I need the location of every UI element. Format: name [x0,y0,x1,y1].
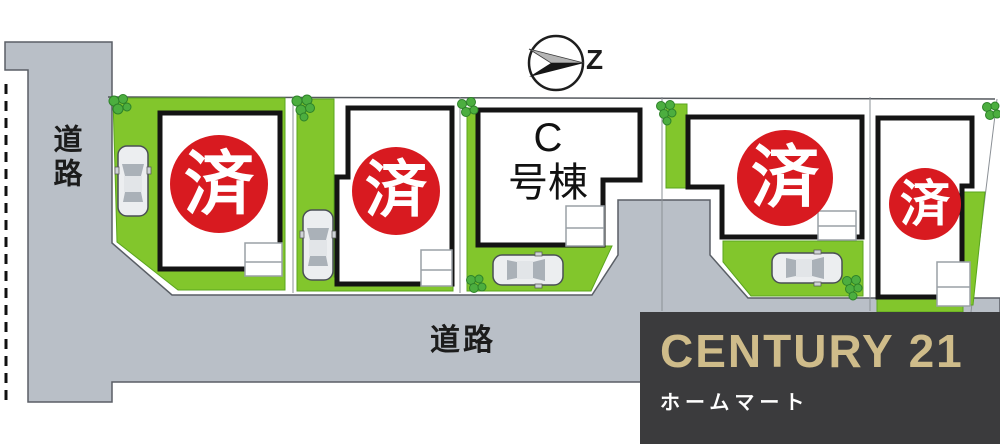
building-c-label-line2: 号棟 [468,161,628,206]
lot5-sold-badge: 済 [889,168,961,240]
century21-logo-box: CENTURY 21 ホームマート [640,312,1000,444]
car-icon [115,146,151,216]
building-c-label: C 号棟 [468,116,628,206]
lot4-grass-left [666,104,687,188]
road-label-bottom: 道路 [430,315,496,359]
lot1-sold-badge: 済 [170,135,268,233]
compass-direction-label: Z [586,44,603,76]
century21-brand-text: CENTURY 21 [660,326,1000,377]
building-c-label-line1: C [468,116,628,161]
car-icon [493,252,563,288]
road-label-left: 道路 [50,124,79,192]
bush-icon [458,98,479,117]
bush-icon [983,102,1000,120]
lot2-sold-badge: 済 [352,147,440,235]
century21-company-text: ホームマート [660,386,1000,415]
bush-icon [467,275,487,293]
car-icon [300,210,336,280]
compass-icon [529,36,584,90]
site-plan: 道路 道路 Z 済 済 済 済 C 号棟 CENTURY 21 ホームマート [0,0,1000,444]
lot4-sold-badge: 済 [737,130,833,226]
car-icon [772,250,842,286]
